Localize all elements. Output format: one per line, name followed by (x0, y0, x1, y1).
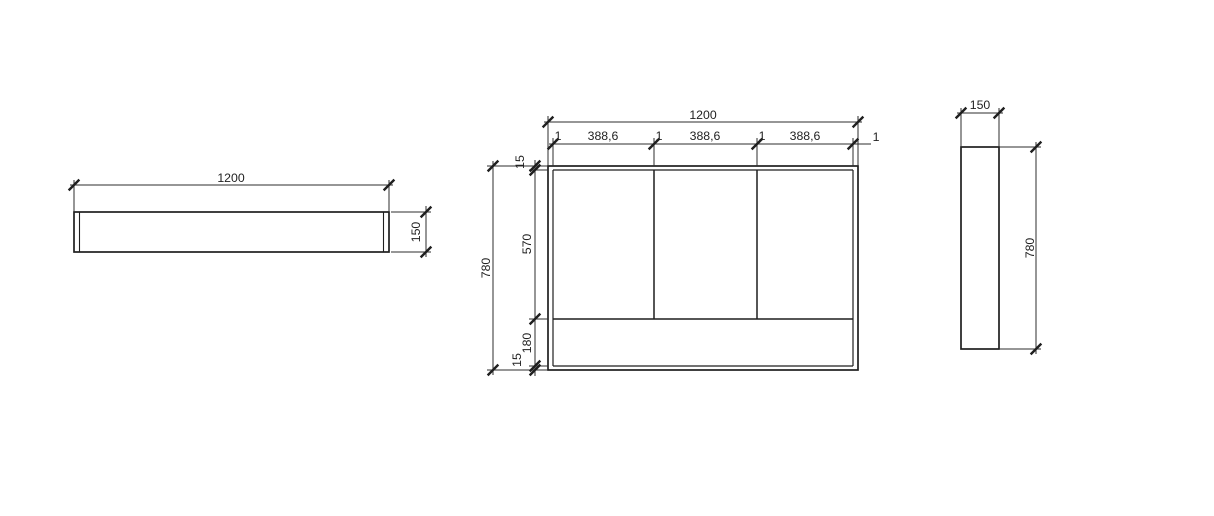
front-view-outline (548, 166, 858, 370)
side-view-outline (961, 147, 999, 349)
front-compartment-label-2: 388,6 (690, 129, 721, 143)
technical-drawing: 1200 150 1200 1 388,6 1 388,6 1 388,6 1 … (0, 0, 1214, 516)
front-gap-label-1: 1 (555, 129, 562, 143)
top-view-width-label: 1200 (217, 171, 245, 185)
front-plinth-height-label: 180 (520, 333, 534, 354)
side-depth-label: 150 (970, 98, 991, 112)
top-view-outline (74, 212, 389, 252)
front-compartment-label-3: 388,6 (790, 129, 821, 143)
front-compartment-label-1: 388,6 (588, 129, 619, 143)
side-height-label: 780 (1023, 238, 1037, 259)
front-width-label: 1200 (689, 108, 717, 122)
drawing-page: 1200 150 1200 1 388,6 1 388,6 1 388,6 1 … (0, 0, 1214, 516)
front-gap-label-2: 1 (656, 129, 663, 143)
top-view-depth-label: 150 (409, 222, 423, 243)
dimension-ticks (70, 109, 1041, 375)
dimension-labels: 1200 150 1200 1 388,6 1 388,6 1 388,6 1 … (217, 98, 1037, 367)
dimension-lines (70, 108, 1041, 376)
front-gap-label-3: 1 (759, 129, 766, 143)
object-lines (74, 147, 999, 370)
front-gap-label-4: 1 (873, 130, 880, 144)
front-bottom-thickness-label: 15 (510, 353, 524, 367)
front-height-label: 780 (479, 258, 493, 279)
front-opening-height-label: 570 (520, 234, 534, 255)
front-top-thickness-label: 15 (513, 155, 527, 169)
